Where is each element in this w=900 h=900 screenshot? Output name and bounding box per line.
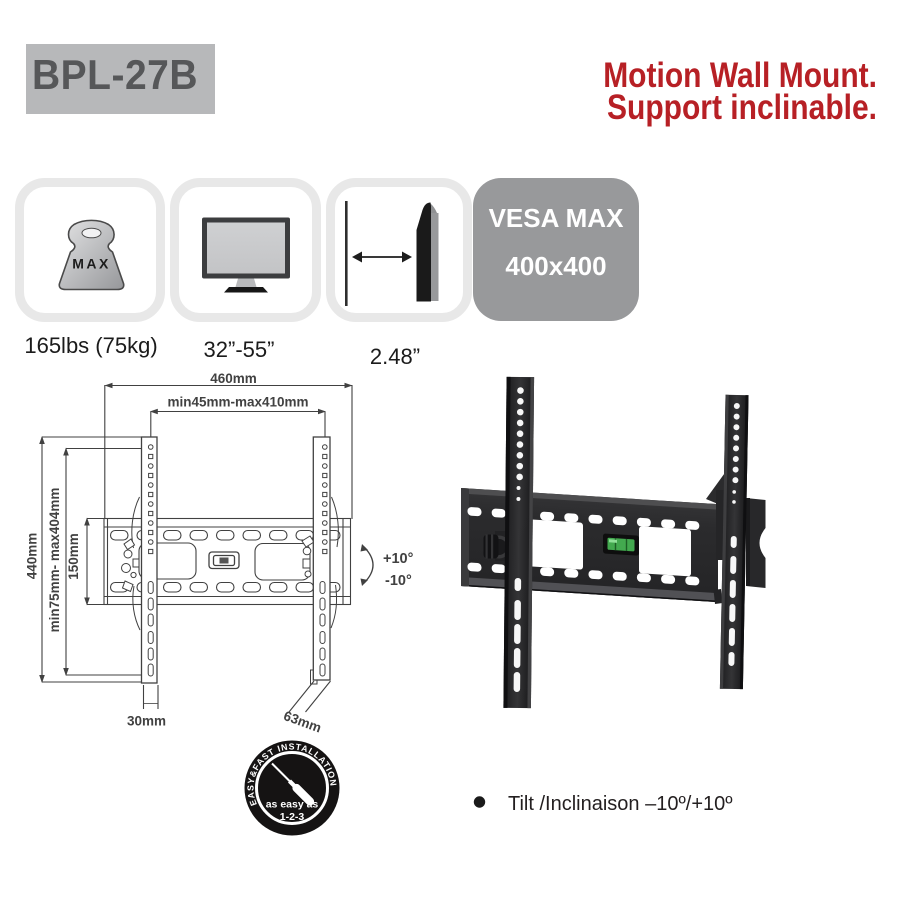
svg-text:MAX: MAX [72, 256, 111, 272]
svg-text:440mm: 440mm [25, 533, 40, 580]
svg-text:min45mm-max410mm: min45mm-max410mm [167, 395, 308, 410]
svg-text:150mm: 150mm [66, 533, 81, 580]
svg-text:1-2-3: 1-2-3 [280, 811, 305, 823]
svg-text:min75mm- max404mm: min75mm- max404mm [47, 488, 62, 633]
svg-text:as easy as: as easy as [266, 799, 319, 811]
svg-text:63mm: 63mm [282, 708, 324, 735]
svg-text:-10°: -10° [385, 573, 412, 589]
svg-text:30mm: 30mm [127, 714, 166, 729]
svg-text:460mm: 460mm [210, 371, 257, 386]
svg-text:+10°: +10° [383, 551, 414, 567]
